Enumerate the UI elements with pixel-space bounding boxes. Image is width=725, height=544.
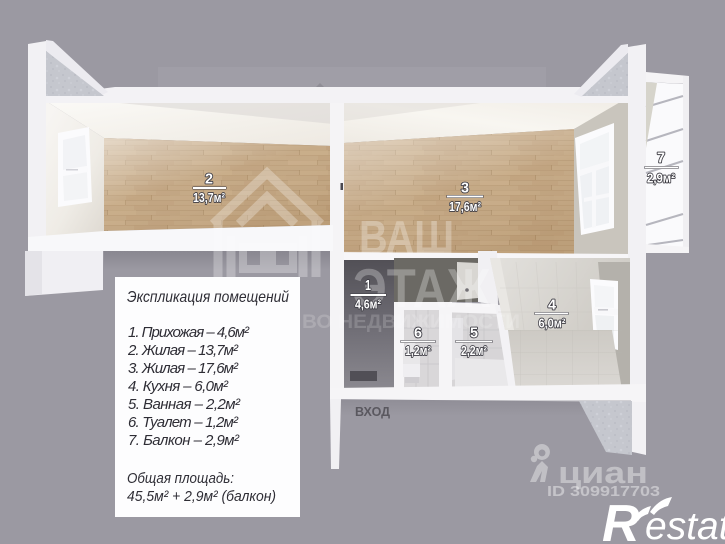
svg-text:6. Туалет – 1,2м²: 6. Туалет – 1,2м² <box>128 414 239 431</box>
svg-text:7. Балкон – 2,9м²: 7. Балкон – 2,9м² <box>128 432 240 449</box>
svg-text:4: 4 <box>548 298 556 314</box>
svg-text:estate: estate <box>645 505 725 544</box>
svg-text:2. Жилая – 13,7м²: 2. Жилая – 13,7м² <box>127 342 239 359</box>
svg-text:2: 2 <box>205 172 213 188</box>
svg-text:2,9м²: 2,9м² <box>647 171 676 186</box>
svg-text:ВАШ: ВАШ <box>359 211 454 263</box>
svg-text:17,6м²: 17,6м² <box>449 199 482 214</box>
svg-text:4. Кухня – 6,0м²: 4. Кухня – 6,0м² <box>128 378 229 395</box>
svg-text:7: 7 <box>657 151 665 167</box>
svg-text:5: 5 <box>470 326 478 342</box>
svg-text:Экспликация помещений: Экспликация помещений <box>127 289 289 306</box>
svg-text:ВО НЕДВИЖИМОСТИ: ВО НЕДВИЖИМОСТИ <box>302 312 520 333</box>
svg-text:Общая площадь:: Общая площадь: <box>127 470 234 487</box>
svg-text:6,0м²: 6,0м² <box>539 316 567 331</box>
svg-text:13,7м²: 13,7м² <box>193 190 226 205</box>
svg-text:1. Прихожая – 4,6м²: 1. Прихожая – 4,6м² <box>128 324 250 341</box>
svg-text:2,2м²: 2,2м² <box>461 343 488 358</box>
svg-text:4,6м²: 4,6м² <box>355 297 382 312</box>
svg-text:1: 1 <box>365 278 371 294</box>
svg-text:45,5м² + 2,9м² (балкон): 45,5м² + 2,9м² (балкон) <box>127 488 276 505</box>
svg-text:3: 3 <box>461 181 469 197</box>
svg-text:ВХОД: ВХОД <box>355 405 390 419</box>
svg-text:1,2м²: 1,2м² <box>405 343 432 358</box>
svg-text:6: 6 <box>414 326 422 342</box>
svg-text:R: R <box>602 495 640 544</box>
svg-text:5. Ванная – 2,2м²: 5. Ванная – 2,2м² <box>128 396 241 413</box>
svg-text:3. Жилая – 17,6м²: 3. Жилая – 17,6м² <box>128 360 239 377</box>
